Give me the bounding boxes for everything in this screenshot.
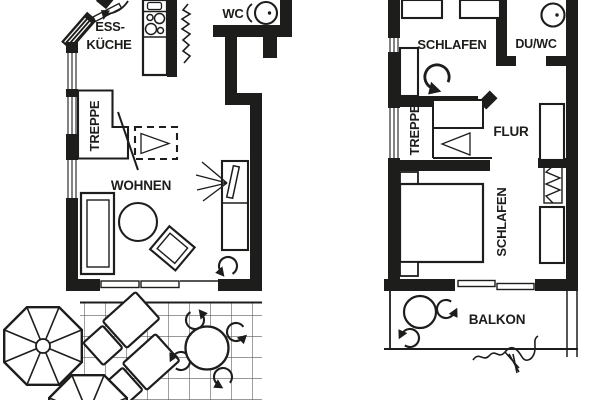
balcony [384,291,578,373]
window [388,108,400,158]
plant-icon [473,336,538,373]
duwc-wall-stub [496,56,516,66]
sofa [81,193,114,274]
armchair [150,226,195,270]
bottom-wall [66,279,100,291]
room-label-wc: WC [222,6,244,21]
bed [402,0,442,18]
double-bed [400,184,483,262]
ground-floor-unit: ESS- KÜCHE WC TREPPE WOHNEN [65,0,292,291]
bottom-wall [218,279,262,291]
door-swing-icon [211,254,240,281]
room-label-treppe-upper: TREPPE [407,104,422,155]
room-label-kueche: KÜCHE [86,37,132,52]
duwc-wall-stub [546,56,566,66]
nightstand [400,172,418,184]
plant-icon [182,4,190,63]
bottom-wall [535,279,578,291]
kitchen-counter [143,0,167,75]
window [66,97,78,134]
wardrobe [540,207,564,263]
sliding-door [458,281,534,290]
room-label-schlafen-lower: SCHLAFEN [494,187,509,256]
stair-direction-arrow [442,133,470,155]
tv-shelf [196,161,248,250]
terrace-table [186,327,229,370]
terrace [4,292,262,400]
room-label-duwc: DU/WC [515,37,557,51]
room-label-wohnen: WOHNEN [111,178,171,193]
upper-floor-unit: SCHLAFEN DU/WC TREPPE FLUR SCHLAFEN BALK… [384,0,578,373]
right-wall [250,93,262,291]
radiator [544,166,562,203]
window [388,38,400,52]
coffee-table [119,203,157,241]
wc-right-wall [280,0,292,25]
room-label-ess: ESS- [95,19,125,34]
flur-wall [388,160,490,171]
room-label-flur: FLUR [493,124,529,139]
room-label-schlafen-upper: SCHLAFEN [417,37,486,52]
window [66,160,78,198]
staircase [433,100,492,158]
window [66,53,78,89]
closet [540,104,564,160]
floor-plan-canvas: ESS- KÜCHE WC TREPPE WOHNEN [0,0,600,400]
stair-direction-arrow [141,134,169,154]
room-label-treppe: TREPPE [87,100,102,151]
room-label-balkon: BALKON [469,312,526,327]
duct [263,37,277,58]
floor-plan-page: ESS- KÜCHE WC TREPPE WOHNEN [0,0,600,400]
kitchen-wall [167,0,177,77]
parasol [4,307,82,385]
angled-wall-stub [101,0,110,5]
chair-icon [433,296,463,324]
right-wall [566,0,578,291]
nightstand [400,262,418,276]
sliding-door [101,281,218,288]
toilet-icon [541,4,564,27]
door-swing-icon [418,61,453,100]
bottom-wall [384,279,455,291]
balcony-table [404,296,436,328]
wardrobe [400,48,418,96]
step-wall [225,37,237,95]
wc-bottom-wall [213,25,292,37]
toilet-icon [247,2,277,24]
bed [460,0,500,18]
